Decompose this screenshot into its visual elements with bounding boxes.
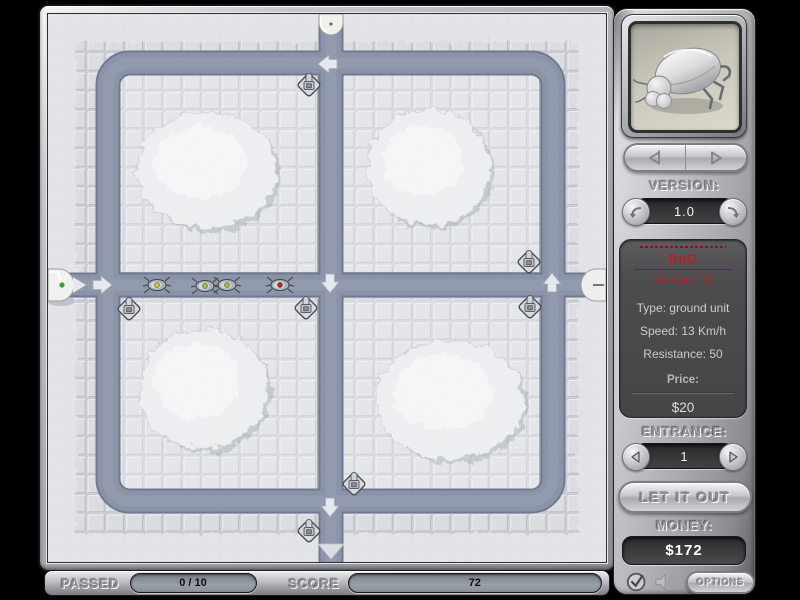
exit-portal-top [319,14,343,35]
unit-resistance-line: Resistance: 50 [620,347,746,361]
unit-info-panel: BuG version 1.0 Type: ground unit Speed:… [619,239,747,418]
version-up-icon [725,204,741,220]
next-unit-button[interactable] [686,145,746,170]
unit-preview-image [628,21,742,133]
game-board-svg[interactable] [48,14,606,562]
status-bar: PASSED 0 / 10 SCORE 72 [44,570,610,596]
unit-type-line: Type: ground unit [620,301,746,315]
confirm-check-icon[interactable] [626,570,648,594]
passed-label: PASSED [61,576,120,591]
board-frame [38,4,616,572]
version-label: VERSION: [614,178,755,193]
unit-speed-line: Speed: 13 Km/h [620,324,746,338]
entrance-label: ENTRANCE: [614,424,755,439]
let-it-out-button[interactable]: LET IT OUT [618,481,752,513]
version-up-button[interactable] [719,198,747,226]
entrance-prev-button[interactable] [622,443,650,471]
entrance-next-icon [726,450,740,464]
money-display: $172 [622,536,746,565]
beetle-image [631,24,739,130]
let-it-out-label: LET IT OUT [639,489,730,505]
fineprint-rule [640,246,726,248]
bug-unit [266,277,294,293]
unit-name: BuG [620,251,746,266]
entrance-prev-icon [629,450,643,464]
price-value: $20 [620,400,746,415]
unit-nav-buttons [623,143,748,172]
exit-portal-right [581,269,606,301]
red-divider [634,269,732,270]
price-label: Price: [620,374,746,386]
score-counter: 72 [348,573,602,593]
score-label: SCORE [289,576,340,591]
version-selector: 1.0 [622,197,747,225]
sidebar-bottom-row: OPTIONS [614,569,755,595]
gray-divider [632,392,734,393]
sidebar: VERSION: 1.0 BuG version 1.0 Type: groun… [613,8,756,595]
unit-preview-frame [621,14,747,138]
version-down-button[interactable] [622,198,650,226]
board-area[interactable] [47,13,607,563]
options-button[interactable]: OPTIONS [686,571,755,594]
sound-icon[interactable] [655,571,679,593]
unit-version-line: version 1.0 [620,273,746,287]
entrance-next-button[interactable] [719,443,747,471]
bug-unit [143,277,171,293]
bug-unit [213,277,241,293]
entrance-selector: 1 [622,442,747,470]
passed-counter: 0 / 10 [130,573,257,593]
version-down-icon [628,204,644,220]
options-label: OPTIONS [697,577,745,587]
right-arrow-icon [707,150,725,166]
money-label: MONEY: [614,518,755,533]
left-arrow-icon [646,150,664,166]
previous-unit-button[interactable] [625,145,686,170]
